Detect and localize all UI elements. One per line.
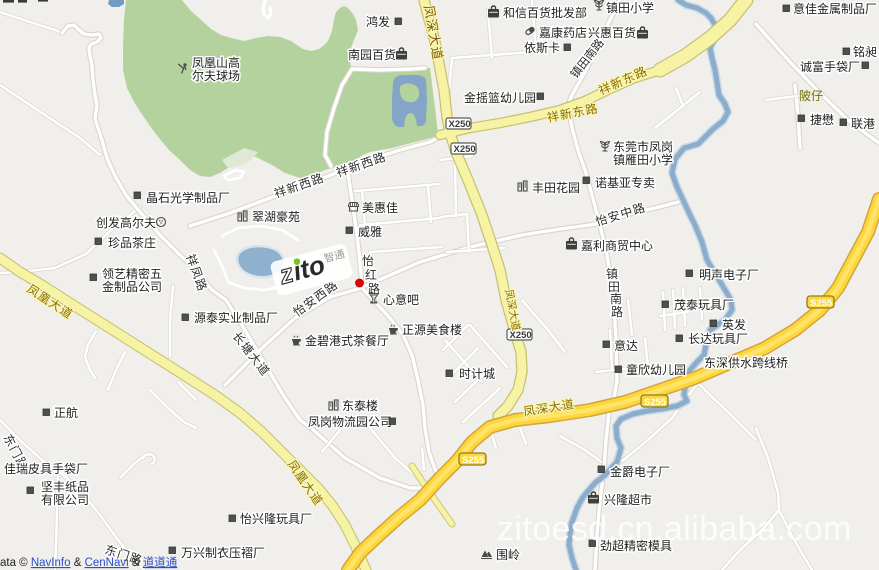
- svg-text:南: 南: [610, 291, 623, 306]
- svg-text:创发高尔夫: 创发高尔夫: [96, 215, 156, 230]
- svg-text:东泰楼: 东泰楼: [342, 398, 378, 413]
- svg-text:S255: S255: [644, 397, 667, 408]
- svg-text:依斯卡: 依斯卡: [524, 40, 560, 55]
- svg-text:陂仔: 陂仔: [799, 88, 823, 103]
- svg-text:金碧港式茶餐厅: 金碧港式茶餐厅: [305, 333, 389, 348]
- svg-text:坚丰纸品: 坚丰纸品: [41, 480, 89, 494]
- svg-text:嘉康药店: 嘉康药店: [539, 25, 587, 40]
- svg-text:东深供水跨线桥: 东深供水跨线桥: [704, 356, 788, 370]
- svg-text:时计城: 时计城: [459, 367, 495, 381]
- svg-text:S255: S255: [810, 298, 833, 309]
- svg-text:镇田小学: 镇田小学: [606, 0, 654, 15]
- svg-text:有限公司: 有限公司: [41, 493, 89, 507]
- svg-text:鸿发: 鸿发: [366, 14, 390, 29]
- svg-text:佳瑞皮具手袋厂: 佳瑞皮具手袋厂: [4, 462, 88, 476]
- svg-text:S255: S255: [462, 455, 485, 466]
- svg-text:珍品茶庄: 珍品茶庄: [108, 235, 156, 250]
- svg-text:金制品公司: 金制品公司: [102, 279, 162, 294]
- svg-text:兴隆超市: 兴隆超市: [604, 492, 652, 507]
- svg-text:凤岗物流园公司: 凤岗物流园公司: [308, 415, 392, 429]
- svg-text:翠湖豪苑: 翠湖豪苑: [252, 209, 300, 224]
- svg-text:路: 路: [611, 304, 624, 319]
- svg-text:童欣幼儿园: 童欣幼儿园: [626, 362, 686, 377]
- svg-text:万兴制衣压褶厂: 万兴制衣压褶厂: [181, 545, 265, 560]
- svg-text:镇: 镇: [606, 267, 619, 281]
- svg-text:源泰实业制品厂: 源泰实业制品厂: [194, 310, 278, 325]
- svg-text:X250: X250: [449, 119, 471, 130]
- svg-text:嘉利商贸中心: 嘉利商贸中心: [581, 238, 653, 253]
- svg-text:正航: 正航: [54, 405, 78, 420]
- svg-text:英发: 英发: [722, 317, 746, 332]
- svg-text:金爵电子厂: 金爵电子厂: [610, 464, 670, 479]
- svg-text:正源美食楼: 正源美食楼: [402, 322, 462, 337]
- svg-text:诺基亚专卖: 诺基亚专卖: [595, 175, 655, 190]
- svg-text:凤凰山高: 凤凰山高: [192, 55, 240, 70]
- svg-text:X250: X250: [510, 330, 532, 341]
- svg-text:兴惠百货: 兴惠百货: [588, 25, 636, 40]
- svg-text:尔夫球场: 尔夫球场: [192, 68, 240, 83]
- svg-text:zitoesd.cn.alibaba.com: zitoesd.cn.alibaba.com: [497, 510, 852, 548]
- svg-text:意佳金属制品厂: 意佳金属制品厂: [793, 1, 877, 16]
- svg-text:红: 红: [365, 267, 378, 282]
- svg-text:南园百货: 南园百货: [348, 47, 396, 62]
- svg-text:金摇篮幼儿园: 金摇篮幼儿园: [464, 90, 536, 105]
- svg-text:东莞市凤岗: 东莞市凤岗: [613, 139, 673, 154]
- svg-text:铭昶: 铭昶: [853, 44, 877, 59]
- svg-text:美惠佳: 美惠佳: [362, 201, 398, 215]
- svg-text:X250: X250: [454, 144, 476, 155]
- svg-text:镇雁田小学: 镇雁田小学: [613, 152, 673, 167]
- svg-text:心意吧: 心意吧: [383, 292, 419, 307]
- svg-text:诚富手袋厂: 诚富手袋厂: [800, 59, 860, 74]
- svg-text:丰田花园: 丰田花园: [532, 180, 580, 195]
- svg-text:捷懋: 捷懋: [810, 112, 834, 127]
- svg-text:晶石光学制品厂: 晶石光学制品厂: [146, 190, 230, 205]
- svg-text:领艺精密五: 领艺精密五: [102, 266, 162, 281]
- svg-text:围岭: 围岭: [496, 548, 520, 562]
- svg-text:和信百货批发部: 和信百货批发部: [503, 5, 587, 20]
- svg-text:威雅: 威雅: [358, 224, 382, 239]
- svg-text:长达玩具厂: 长达玩具厂: [688, 332, 748, 346]
- svg-text:茂泰玩具厂: 茂泰玩具厂: [674, 298, 734, 312]
- svg-text:意达: 意达: [614, 338, 638, 353]
- svg-text:ata © NavInfo & CenNavi & 道道通: ata © NavInfo & CenNavi & 道道通: [0, 555, 178, 569]
- svg-text:明声电子厂: 明声电子厂: [699, 268, 759, 282]
- svg-text:怡兴隆玩具厂: 怡兴隆玩具厂: [240, 511, 312, 526]
- svg-text:联港: 联港: [851, 117, 875, 131]
- svg-text:怡: 怡: [362, 254, 375, 268]
